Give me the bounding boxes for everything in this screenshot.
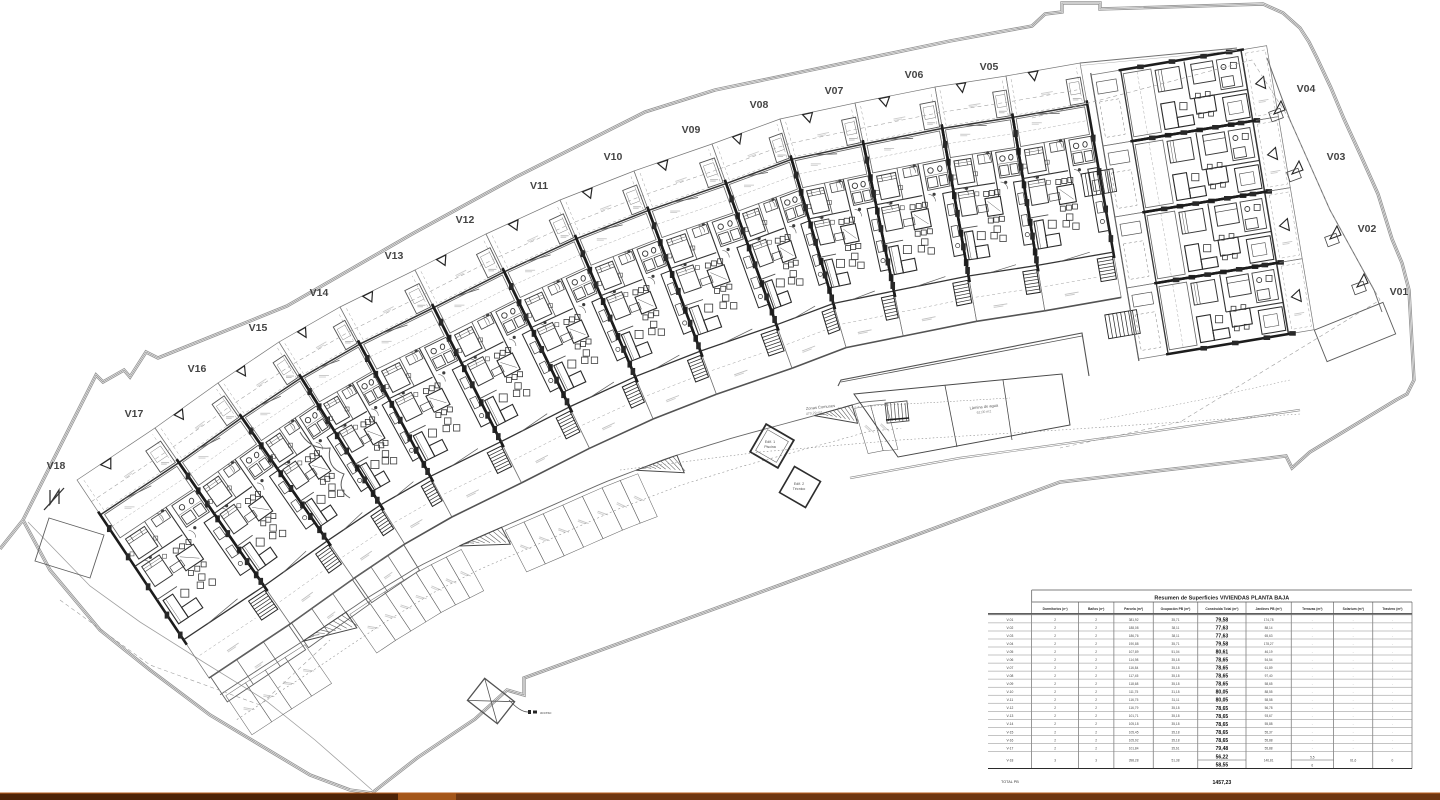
svg-text:88,55: 88,55 xyxy=(1265,690,1273,694)
svg-text:Construida Total (m²): Construida Total (m²) xyxy=(1205,607,1238,611)
svg-text:V14: V14 xyxy=(310,287,329,299)
svg-text:79,58: 79,58 xyxy=(1216,642,1229,648)
svg-text:78,65: 78,65 xyxy=(1216,722,1229,728)
svg-text:V07: V07 xyxy=(825,85,844,97)
svg-text:V10: V10 xyxy=(604,151,623,163)
svg-text:61,89: 61,89 xyxy=(1265,666,1273,670)
svg-text:190,88: 190,88 xyxy=(1129,642,1139,646)
svg-text:2: 2 xyxy=(1095,658,1097,662)
svg-text:46,19: 46,19 xyxy=(1265,650,1273,654)
svg-text:35,18: 35,18 xyxy=(1172,722,1180,726)
svg-text:Baños (nº): Baños (nº) xyxy=(1088,607,1104,611)
svg-text:79,48: 79,48 xyxy=(1216,746,1229,752)
svg-text:55,88: 55,88 xyxy=(1265,722,1273,726)
svg-text:V-08: V-08 xyxy=(1007,674,1014,678)
svg-text:77,63: 77,63 xyxy=(1216,634,1229,640)
svg-text:V17: V17 xyxy=(125,408,144,420)
svg-text:V-05: V-05 xyxy=(1007,650,1014,654)
svg-text:V-03: V-03 xyxy=(1007,634,1014,638)
svg-text:Dormitorios (nº): Dormitorios (nº) xyxy=(1043,607,1068,611)
svg-text:58,65: 58,65 xyxy=(1265,682,1273,686)
svg-text:V-02: V-02 xyxy=(1007,626,1014,630)
svg-text:56,78: 56,78 xyxy=(1265,706,1273,710)
svg-text:58,58: 58,58 xyxy=(1265,698,1273,702)
svg-text:V-01: V-01 xyxy=(1007,618,1014,622)
svg-text:2: 2 xyxy=(1054,714,1056,718)
svg-text:146,81: 146,81 xyxy=(1264,758,1274,762)
svg-text:2: 2 xyxy=(1054,746,1056,750)
svg-text:Terrazas (m²): Terrazas (m²) xyxy=(1302,607,1322,611)
svg-text:101,71: 101,71 xyxy=(1129,714,1139,718)
svg-text:54,54: 54,54 xyxy=(1265,658,1273,662)
svg-text:V-14: V-14 xyxy=(1007,722,1014,726)
svg-text:35,18: 35,18 xyxy=(1172,658,1180,662)
svg-text:80,05: 80,05 xyxy=(1216,690,1229,696)
svg-text:2: 2 xyxy=(1054,682,1056,686)
svg-text:105,45: 105,45 xyxy=(1129,730,1139,734)
svg-text:35,61: 35,61 xyxy=(1172,746,1180,750)
svg-text:V-15: V-15 xyxy=(1007,730,1014,734)
svg-text:97,40: 97,40 xyxy=(1265,674,1273,678)
svg-text:2: 2 xyxy=(1054,642,1056,646)
svg-text:78,65: 78,65 xyxy=(1216,666,1229,672)
svg-text:2: 2 xyxy=(1054,690,1056,694)
svg-text:Resumen de Superficies VIVIEND: Resumen de Superficies VIVIENDAS PLANTA … xyxy=(1154,596,1289,602)
svg-text:V-17: V-17 xyxy=(1007,746,1014,750)
svg-text:1457,23: 1457,23 xyxy=(1213,780,1232,786)
svg-text:56,22: 56,22 xyxy=(1216,754,1229,760)
svg-text:116,79: 116,79 xyxy=(1129,706,1139,710)
svg-text:2: 2 xyxy=(1095,618,1097,622)
svg-text:V-07: V-07 xyxy=(1007,666,1014,670)
svg-text:Ocupación PB (m²): Ocupación PB (m²) xyxy=(1161,607,1191,611)
svg-text:88,14: 88,14 xyxy=(1265,626,1273,630)
svg-text:Jardines PB (m²): Jardines PB (m²) xyxy=(1255,607,1281,611)
svg-text:35,18: 35,18 xyxy=(1172,738,1180,742)
svg-text:2: 2 xyxy=(1054,634,1056,638)
svg-text:V01: V01 xyxy=(1390,286,1409,298)
svg-text:105,92: 105,92 xyxy=(1129,738,1139,742)
svg-text:35,18: 35,18 xyxy=(1172,674,1180,678)
svg-text:116,84: 116,84 xyxy=(1129,666,1139,670)
svg-text:2: 2 xyxy=(1095,706,1097,710)
svg-text:V06: V06 xyxy=(905,69,924,81)
svg-text:2: 2 xyxy=(1095,690,1097,694)
svg-text:93,67: 93,67 xyxy=(1265,714,1273,718)
svg-text:2: 2 xyxy=(1054,706,1056,710)
svg-text:55,88: 55,88 xyxy=(1265,746,1273,750)
svg-text:2: 2 xyxy=(1054,738,1056,742)
svg-text:Piscina: Piscina xyxy=(764,445,776,449)
svg-text:2: 2 xyxy=(1095,730,1097,734)
svg-text:2: 2 xyxy=(1054,666,1056,670)
svg-text:381,92: 381,92 xyxy=(1129,618,1139,622)
svg-text:V-10: V-10 xyxy=(1007,690,1014,694)
svg-text:2: 2 xyxy=(1054,618,1056,622)
svg-text:2: 2 xyxy=(1095,698,1097,702)
svg-text:0: 0 xyxy=(1392,758,1394,762)
svg-text:2: 2 xyxy=(1095,674,1097,678)
svg-text:V-04: V-04 xyxy=(1007,642,1014,646)
svg-text:2: 2 xyxy=(1054,658,1056,662)
svg-text:2: 2 xyxy=(1054,650,1056,654)
svg-text:2: 2 xyxy=(1054,674,1056,678)
svg-text:V-16: V-16 xyxy=(1007,738,1014,742)
svg-text:78,65: 78,65 xyxy=(1216,674,1229,680)
svg-text:Técnico: Técnico xyxy=(793,487,806,491)
svg-text:2: 2 xyxy=(1054,698,1056,702)
svg-text:105,18: 105,18 xyxy=(1129,722,1139,726)
svg-text:35,71: 35,71 xyxy=(1172,618,1180,622)
svg-text:2: 2 xyxy=(1095,746,1097,750)
svg-text:V09: V09 xyxy=(682,124,701,136)
svg-text:Edif. 2: Edif. 2 xyxy=(794,482,804,486)
svg-text:78,65: 78,65 xyxy=(1216,658,1229,664)
svg-text:178,27: 178,27 xyxy=(1264,642,1274,646)
svg-text:117,45: 117,45 xyxy=(1129,674,1139,678)
svg-text:78,65: 78,65 xyxy=(1216,730,1229,736)
svg-text:35,18: 35,18 xyxy=(1172,730,1180,734)
svg-text:116,75: 116,75 xyxy=(1129,698,1139,702)
svg-text:Solarium (m²): Solarium (m²) xyxy=(1343,607,1364,611)
svg-text:55,37: 55,37 xyxy=(1265,730,1273,734)
svg-text:V03: V03 xyxy=(1327,151,1346,163)
svg-text:78,65: 78,65 xyxy=(1216,682,1229,688)
svg-text:6: 6 xyxy=(1311,764,1313,768)
svg-text:38,11: 38,11 xyxy=(1172,634,1180,638)
svg-text:51,04: 51,04 xyxy=(1172,650,1180,654)
svg-text:2: 2 xyxy=(1054,722,1056,726)
svg-text:398,28: 398,28 xyxy=(1129,758,1139,762)
svg-text:35,71: 35,71 xyxy=(1172,642,1180,646)
svg-text:2: 2 xyxy=(1095,634,1097,638)
svg-text:31,11: 31,11 xyxy=(1172,698,1180,702)
svg-text:78,65: 78,65 xyxy=(1216,738,1229,744)
svg-text:186,76: 186,76 xyxy=(1129,634,1139,638)
svg-text:2: 2 xyxy=(1054,626,1056,630)
svg-text:111,75: 111,75 xyxy=(1129,690,1139,694)
svg-text:51,38: 51,38 xyxy=(1172,758,1180,762)
svg-text:79,58: 79,58 xyxy=(1216,617,1229,623)
svg-text:acceso: acceso xyxy=(540,711,551,715)
svg-text:65,63: 65,63 xyxy=(1265,634,1273,638)
svg-text:35,18: 35,18 xyxy=(1172,666,1180,670)
svg-text:2: 2 xyxy=(1095,722,1097,726)
svg-text:Edif. 1: Edif. 1 xyxy=(765,440,775,444)
svg-text:2: 2 xyxy=(1095,666,1097,670)
svg-text:V02: V02 xyxy=(1358,223,1377,235)
svg-text:Trastero (m²): Trastero (m²) xyxy=(1382,607,1402,611)
svg-text:118,68: 118,68 xyxy=(1129,682,1139,686)
svg-text:78,65: 78,65 xyxy=(1216,714,1229,720)
svg-text:2: 2 xyxy=(1095,682,1097,686)
svg-text:80,61: 80,61 xyxy=(1216,650,1229,656)
svg-text:V-13: V-13 xyxy=(1007,714,1014,718)
svg-text:V-09: V-09 xyxy=(1007,682,1014,686)
svg-text:V05: V05 xyxy=(980,61,999,73)
svg-text:61,6: 61,6 xyxy=(1350,758,1356,762)
svg-text:5,5: 5,5 xyxy=(1310,755,1315,759)
svg-text:174,78: 174,78 xyxy=(1264,618,1274,622)
svg-text:V15: V15 xyxy=(249,322,268,334)
svg-text:38,11: 38,11 xyxy=(1172,626,1180,630)
svg-text:107,89: 107,89 xyxy=(1129,650,1139,654)
svg-text:114,98: 114,98 xyxy=(1129,658,1139,662)
svg-text:77,63: 77,63 xyxy=(1216,626,1229,632)
svg-text:TOTAL PB: TOTAL PB xyxy=(1001,780,1019,784)
svg-text:3: 3 xyxy=(1095,758,1097,762)
svg-text:V08: V08 xyxy=(750,99,769,111)
svg-text:V11: V11 xyxy=(530,180,548,192)
svg-text:V-06: V-06 xyxy=(1007,658,1014,662)
svg-text:80,05: 80,05 xyxy=(1216,698,1229,704)
svg-text:3: 3 xyxy=(1054,758,1056,762)
svg-text:35,18: 35,18 xyxy=(1172,714,1180,718)
svg-text:V13: V13 xyxy=(385,250,404,262)
svg-text:101,84: 101,84 xyxy=(1129,746,1139,750)
svg-text:2: 2 xyxy=(1095,626,1097,630)
svg-text:188,08: 188,08 xyxy=(1129,626,1139,630)
svg-text:2: 2 xyxy=(1095,642,1097,646)
svg-text:2: 2 xyxy=(1054,730,1056,734)
svg-text:V12: V12 xyxy=(456,214,475,226)
svg-text:2: 2 xyxy=(1095,738,1097,742)
svg-text:Parcela (m²): Parcela (m²) xyxy=(1124,607,1143,611)
svg-text:V-18: V-18 xyxy=(1007,758,1014,762)
svg-text:V18: V18 xyxy=(47,460,66,472)
svg-text:35,18: 35,18 xyxy=(1172,682,1180,686)
svg-text:V-12: V-12 xyxy=(1007,706,1014,710)
svg-text:58,55: 58,55 xyxy=(1216,763,1229,769)
svg-text:35,18: 35,18 xyxy=(1172,706,1180,710)
svg-text:2: 2 xyxy=(1095,650,1097,654)
svg-text:2: 2 xyxy=(1095,714,1097,718)
svg-text:V-11: V-11 xyxy=(1007,698,1014,702)
svg-text:V04: V04 xyxy=(1297,83,1316,95)
svg-text:55,88: 55,88 xyxy=(1265,738,1273,742)
svg-text:V16: V16 xyxy=(188,363,207,375)
svg-text:78,65: 78,65 xyxy=(1216,706,1229,712)
svg-text:31,18: 31,18 xyxy=(1172,690,1180,694)
